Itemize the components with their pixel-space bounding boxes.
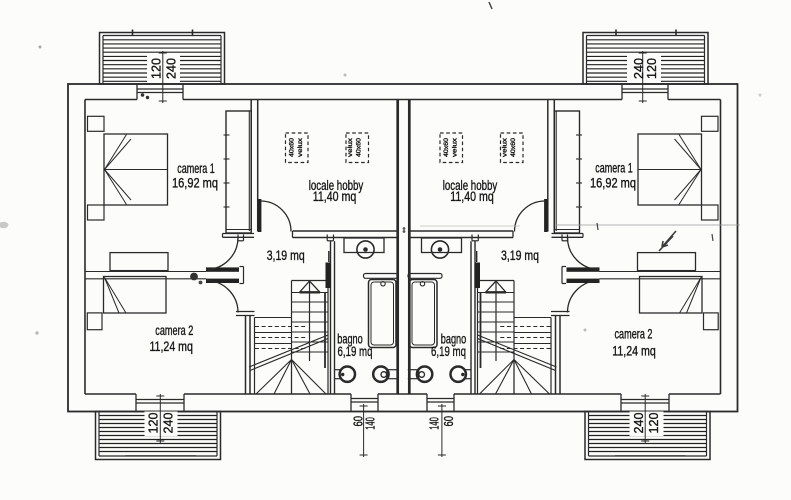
svg-text:11,24 mq: 11,24 mq bbox=[612, 344, 656, 359]
svg-text:40x60: 40x60 bbox=[443, 137, 450, 157]
svg-text:camera 2: camera 2 bbox=[615, 327, 653, 342]
svg-text:6,19 mq: 6,19 mq bbox=[431, 344, 466, 359]
svg-text:16,92 mq: 16,92 mq bbox=[590, 176, 636, 191]
svg-text:camera 2: camera 2 bbox=[155, 323, 193, 338]
svg-text:velux: velux bbox=[502, 137, 509, 157]
svg-text:120: 120 bbox=[647, 412, 661, 433]
svg-text:240: 240 bbox=[632, 412, 646, 433]
svg-text:60: 60 bbox=[442, 416, 456, 427]
svg-text:6,19 mq: 6,19 mq bbox=[338, 344, 373, 359]
svg-text:3,19 mq: 3,19 mq bbox=[267, 248, 305, 263]
svg-text:11,40 mq: 11,40 mq bbox=[313, 189, 357, 204]
svg-text:120: 120 bbox=[147, 412, 161, 433]
svg-text:velux: velux bbox=[347, 137, 354, 157]
svg-text:240: 240 bbox=[164, 58, 178, 79]
svg-text:240: 240 bbox=[632, 58, 646, 79]
svg-text:240: 240 bbox=[162, 412, 176, 433]
svg-text:40x60: 40x60 bbox=[510, 137, 517, 157]
svg-text:velux: velux bbox=[452, 137, 459, 157]
svg-text:3,19 mq: 3,19 mq bbox=[501, 248, 539, 263]
svg-text:11,40 mq: 11,40 mq bbox=[450, 189, 494, 204]
svg-text:140: 140 bbox=[427, 417, 441, 430]
svg-text:120: 120 bbox=[149, 58, 163, 79]
svg-text:16,92 mq: 16,92 mq bbox=[172, 176, 218, 191]
svg-text:140: 140 bbox=[364, 417, 378, 430]
svg-text:camera 1: camera 1 bbox=[177, 161, 215, 176]
svg-text:camera 1: camera 1 bbox=[595, 161, 633, 176]
svg-text:40x60: 40x60 bbox=[289, 137, 296, 157]
svg-text:120: 120 bbox=[645, 58, 659, 79]
svg-text:40x60: 40x60 bbox=[355, 137, 362, 157]
svg-text:11,24 mq: 11,24 mq bbox=[149, 339, 193, 354]
svg-text:velux: velux bbox=[297, 137, 304, 157]
